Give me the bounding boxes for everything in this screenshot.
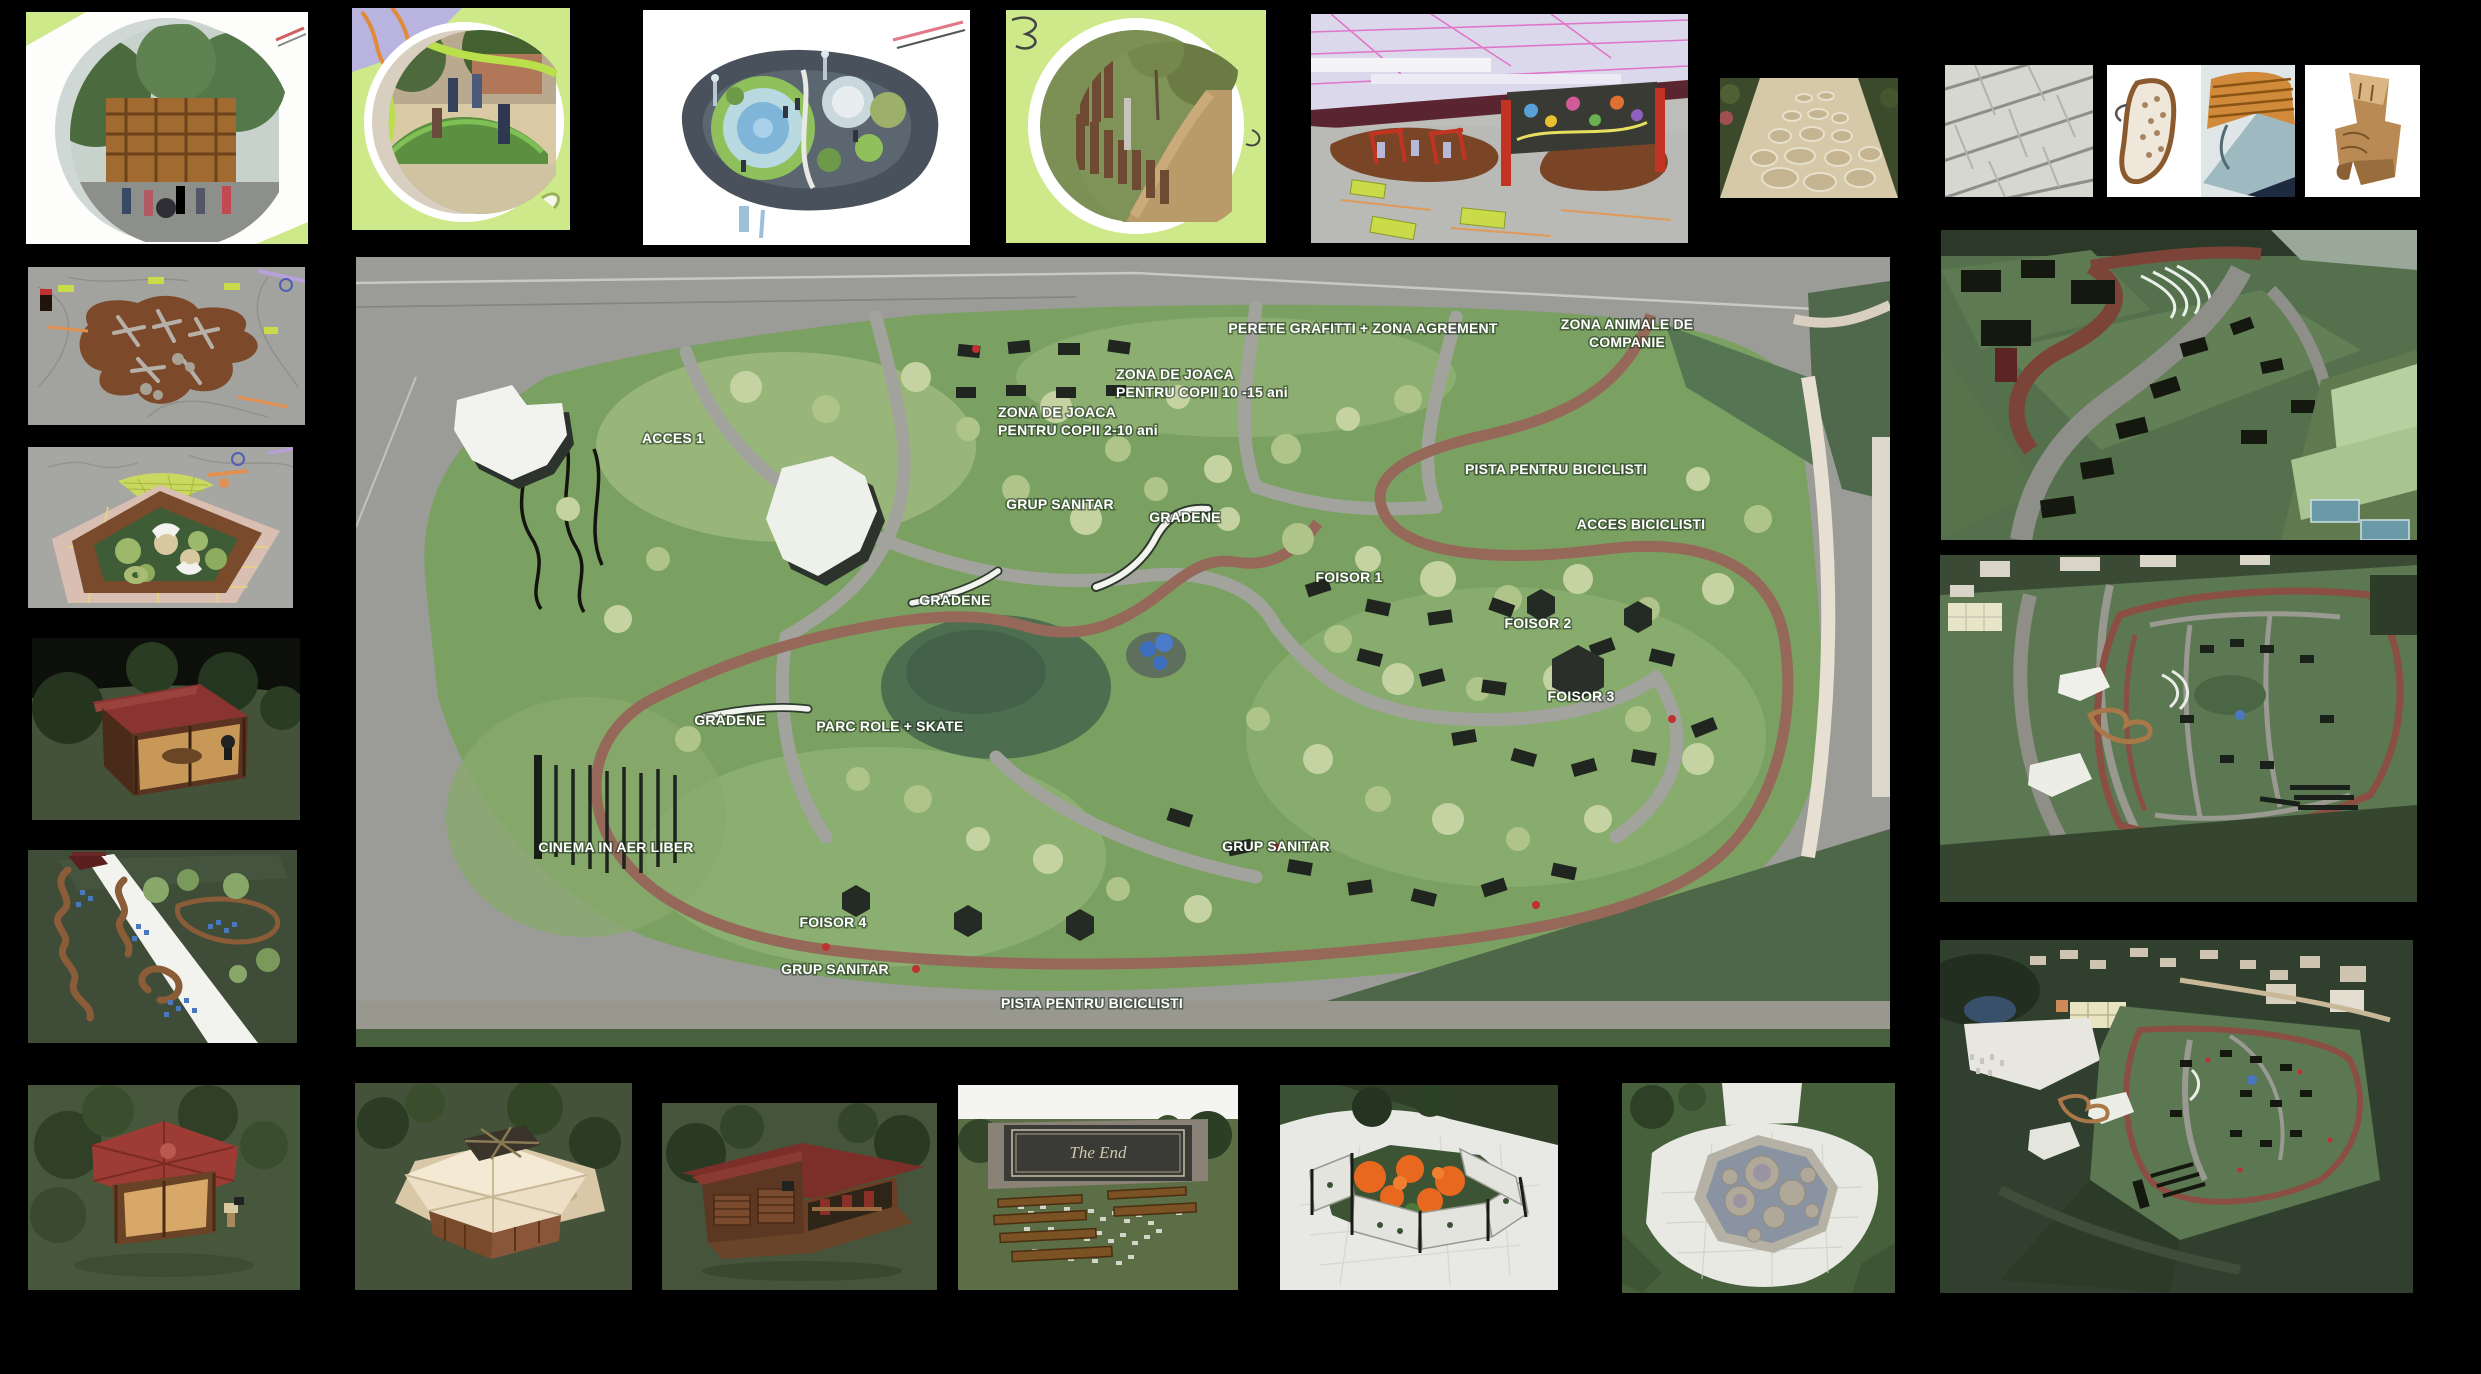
render-mosaic-path-aerial (28, 850, 297, 1043)
render-pentagon-sand-playground (28, 447, 293, 608)
render-gradene-perspective-art (1941, 230, 2417, 540)
plan-label: ZONA ANIMALE DE (1561, 316, 1694, 332)
photo-flagstone-paving (1720, 78, 1898, 198)
render-pavilion-cream-roof-skylight (355, 1083, 632, 1290)
photo-corten-palisade-art (1006, 10, 1266, 243)
render-graffiti-wall-playground (1311, 14, 1688, 243)
plan-label: PERETE GRAFITTI + ZONA AGREMENT (1228, 320, 1497, 336)
photo-timber-building-circle (26, 12, 308, 244)
plan-label: GRUP SANITAR (1222, 838, 1330, 854)
photo-flagstone-art (1720, 78, 1898, 198)
render-open-air-cinema-art: The End (958, 1085, 1238, 1290)
render-site-birdseye-night (1940, 940, 2413, 1293)
render-park-aerial-overview (1940, 555, 2417, 902)
render-open-air-cinema: The End (958, 1085, 1238, 1290)
render-log-playground-plan (28, 267, 305, 425)
plan-label: ACCES BICICLISTI (1577, 516, 1705, 532)
plan-label: CINEMA IN AER LIBER (538, 839, 693, 855)
render-pavilion-skylight-art (355, 1083, 632, 1290)
render-octagon-fountain-topview (1622, 1083, 1895, 1293)
render-circular-playground-card (643, 10, 970, 245)
render-pavilion-redroof-art (662, 1103, 937, 1290)
photo-corten-palisade-circle (1006, 10, 1266, 243)
render-hex-gazebo-red-roof (28, 1085, 300, 1290)
plan-label: FOISOR 1 (1316, 569, 1383, 585)
render-log-playground-art (28, 267, 305, 425)
plan-label: PARC ROLE + SKATE (816, 718, 963, 734)
plan-label: PISTA PENTRU BICICLISTI (1465, 461, 1647, 477)
plan-label: GRUP SANITAR (781, 961, 889, 977)
photo-shingles-art (1945, 65, 2093, 197)
presentation-board: PERETE GRAFITTI + ZONA AGREMENT ZONA ANI… (0, 0, 2481, 1374)
plan-label: GRADENE (694, 712, 765, 728)
plan-label: COMPANIE (1589, 334, 1665, 350)
render-square-gazebo-art (32, 638, 300, 820)
plan-label: GRUP SANITAR (1006, 496, 1114, 512)
plan-label: FOISOR 2 (1505, 615, 1572, 631)
master-plan-art: PERETE GRAFITTI + ZONA AGREMENT ZONA ANI… (356, 257, 1890, 1047)
render-designer-chairs (2107, 65, 2295, 197)
plan-label: GRADENE (1149, 509, 1220, 525)
plan-label: ACCES 1 (642, 430, 704, 446)
render-gradene-bikepath-perspective (1941, 230, 2417, 540)
plan-label: PISTA PENTRU BICICLISTI (1001, 995, 1183, 1011)
render-park-aerial-art (1940, 555, 2417, 902)
plan-label: ZONA DE JOACA (998, 404, 1116, 420)
photo-kids-playground-circle (352, 8, 570, 230)
park-master-plan: PERETE GRAFITTI + ZONA AGREMENT ZONA ANI… (356, 257, 1890, 1047)
render-flower-enclosure-art (1280, 1085, 1558, 1290)
render-octagon-flower-enclosure (1280, 1085, 1558, 1290)
render-fountain-topview-art (1622, 1083, 1895, 1293)
plan-label: FOISOR 3 (1548, 688, 1615, 704)
plan-label: PENTRU COPII 10 -15 ani (1116, 384, 1288, 400)
render-circular-playground-art (643, 10, 970, 245)
render-graffiti-wall-art (1311, 14, 1688, 243)
render-site-birdseye-art (1940, 940, 2413, 1293)
render-square-gazebo-night (32, 638, 300, 820)
render-log-chair (2305, 65, 2420, 197)
photo-timber-building-art (26, 12, 308, 244)
photo-stone-shingles (1945, 65, 2093, 197)
render-designer-chairs-art (2107, 65, 2295, 197)
photo-kids-playground-art (352, 8, 570, 230)
cinema-screen-text: The End (1069, 1143, 1127, 1162)
render-hex-gazebo-art (28, 1085, 300, 1290)
render-log-chair-art (2305, 65, 2420, 197)
plan-label: FOISOR 4 (800, 914, 867, 930)
plan-label: ZONA DE JOACA (1116, 366, 1234, 382)
plan-label: PENTRU COPII 2-10 ani (998, 422, 1158, 438)
render-mosaic-path-art (28, 850, 297, 1043)
render-pavilion-dark-red-roof (662, 1103, 937, 1290)
plan-label: GRADENE (919, 592, 990, 608)
render-pentagon-playground-art (28, 447, 293, 608)
